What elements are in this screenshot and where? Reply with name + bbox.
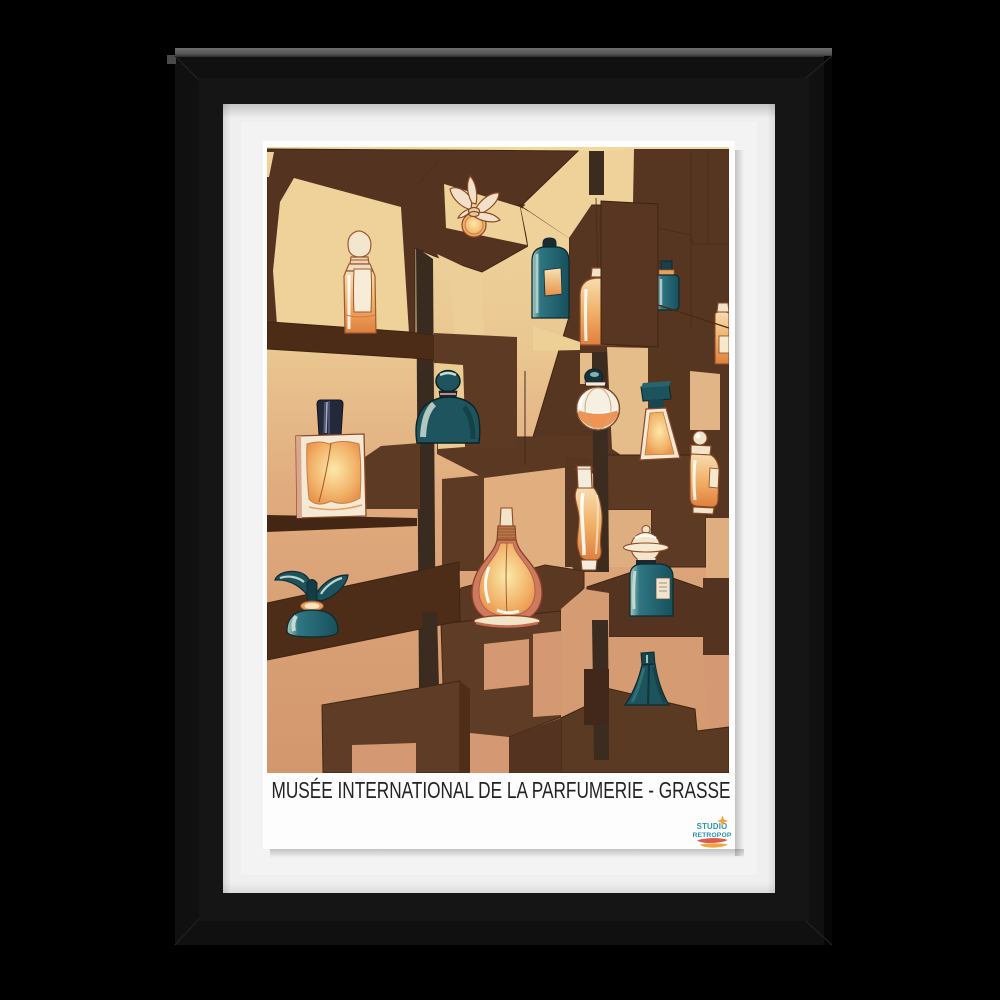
svg-text:MUSÉE INTERNATIONAL DE LA PARF: MUSÉE INTERNATIONAL DE LA PARFUMERIE - G… xyxy=(272,777,731,803)
svg-text:RETROPOP: RETROPOP xyxy=(693,832,732,839)
